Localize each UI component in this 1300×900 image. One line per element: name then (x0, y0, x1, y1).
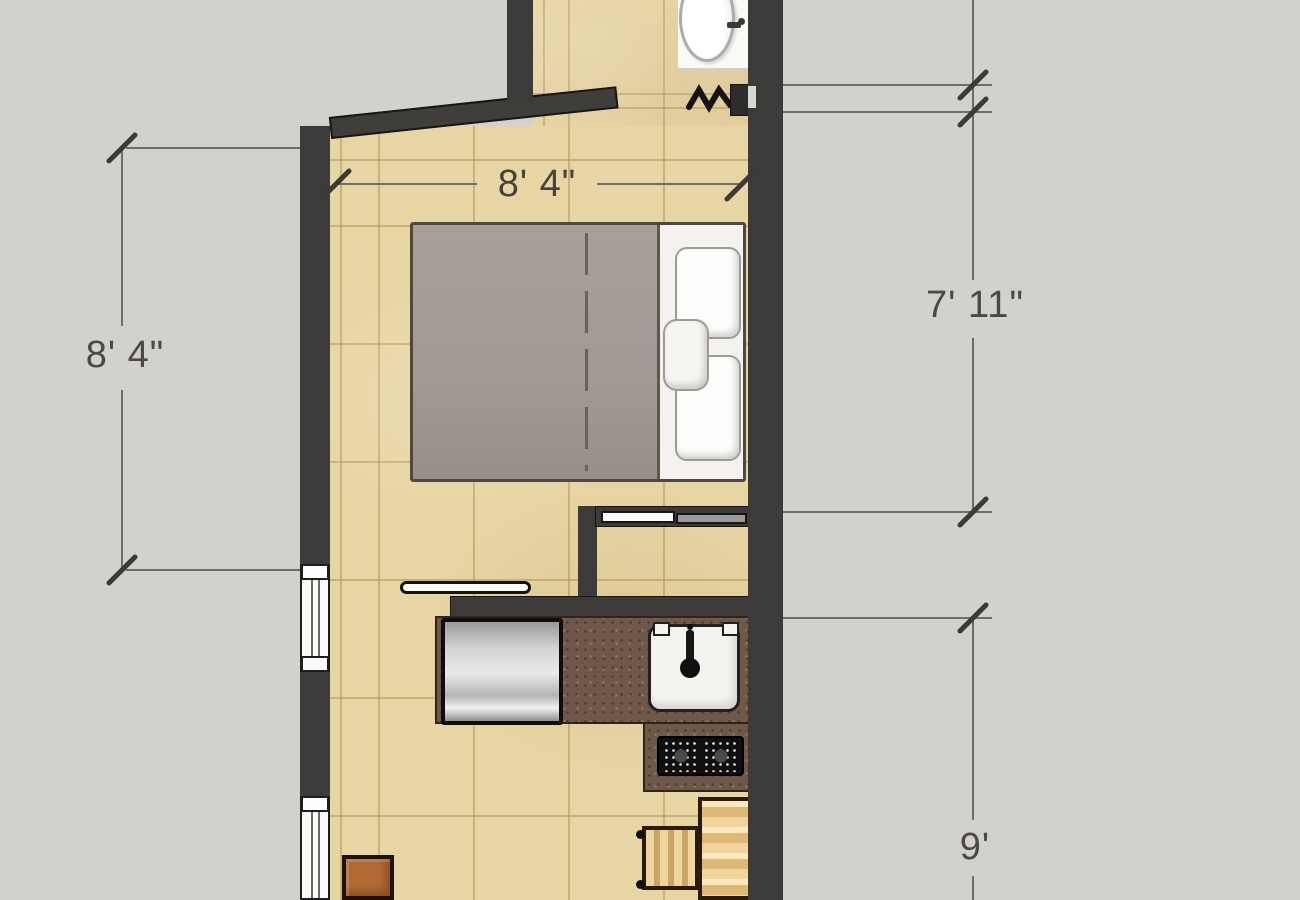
kitchen-sink-clip-left (653, 622, 670, 636)
floor-plan-canvas: 8' 4" 8' 4" 7' 11" 9' (0, 0, 1300, 900)
window-left-upper (300, 564, 330, 672)
dimension-right-lower: 9' (915, 828, 1035, 866)
cooktop-burner-left (663, 740, 699, 772)
chair-knob-top (636, 830, 645, 839)
closet-door-gray (676, 513, 747, 524)
closet-door-white (601, 511, 675, 523)
window-left-lower (300, 796, 330, 900)
dining-table (698, 797, 753, 900)
sink-faucet-dot-icon (738, 18, 745, 25)
cooktop-burner-right (703, 740, 739, 772)
double-bed (410, 222, 746, 482)
bed-duvet (413, 225, 660, 479)
pillow-small (663, 319, 709, 391)
dimension-right-upper: 7' 11" (905, 286, 1045, 324)
window-cap (301, 656, 329, 672)
kitchen-half-wall (450, 596, 757, 618)
refrigerator (441, 618, 563, 725)
wall-right-notch (748, 86, 756, 108)
wall-shelf (400, 581, 531, 594)
kitchen-faucet-cap-icon (687, 624, 693, 630)
kitchen-faucet-base-icon (680, 658, 700, 678)
dimension-left-height: 8' 4" (60, 336, 190, 374)
dining-chair (642, 826, 699, 890)
dimension-top-width: 8' 4" (477, 165, 597, 203)
kitchen-sink-clip-right (722, 622, 739, 636)
towel-radiator-icon (686, 80, 736, 116)
window-cap (301, 564, 329, 580)
chair-knob-bottom (636, 880, 645, 889)
window-cap (301, 796, 329, 812)
stool (342, 855, 394, 900)
radiator-mount (730, 84, 750, 116)
wall-right (748, 0, 783, 900)
wall-left-upper (300, 126, 330, 564)
duvet-fold-line (585, 233, 588, 471)
wall-left-mid (300, 672, 330, 796)
wall-top-stub (507, 0, 533, 104)
